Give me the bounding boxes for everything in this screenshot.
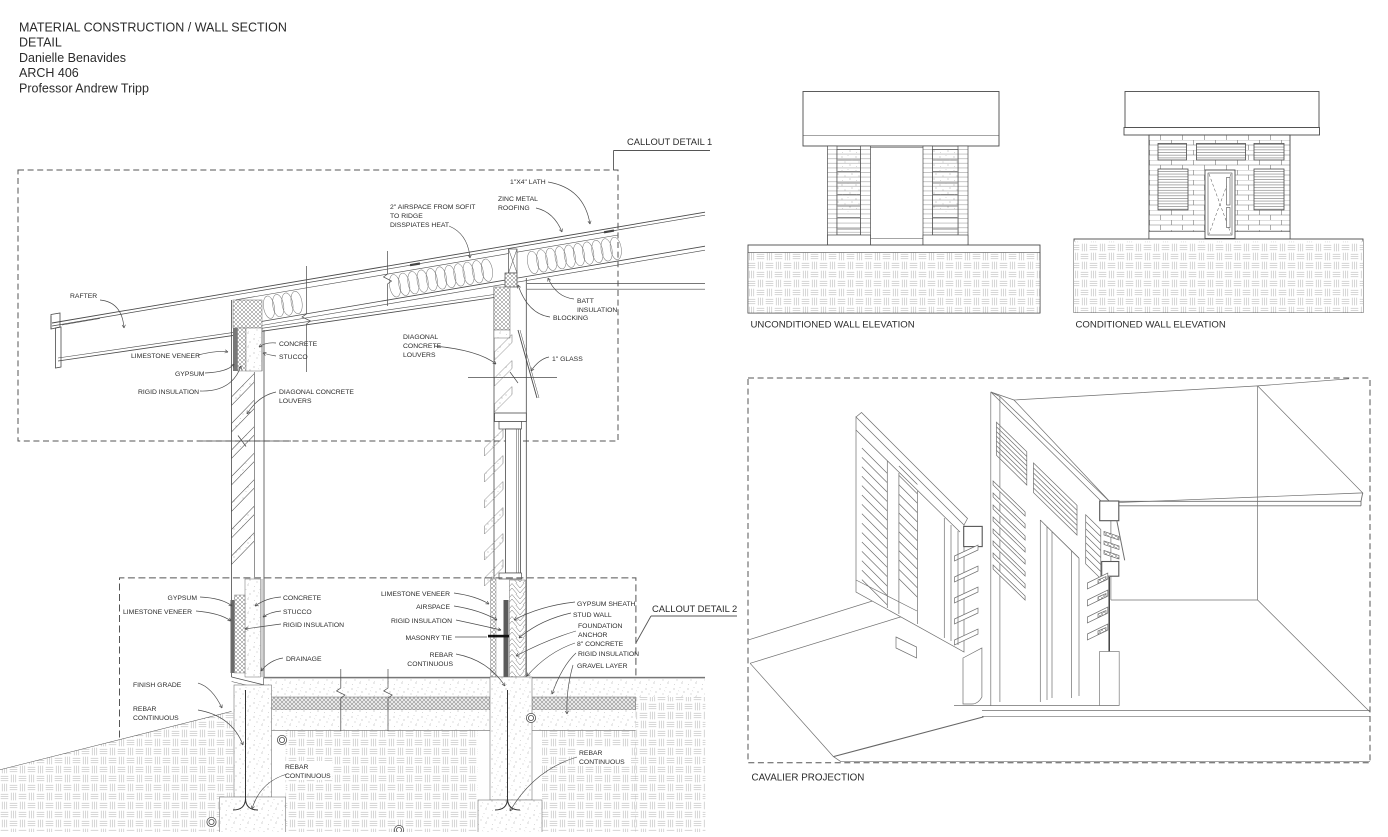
svg-text:ROOFING: ROOFING	[498, 205, 530, 212]
svg-text:LIMESTONE VENEER: LIMESTONE VENEER	[123, 609, 192, 616]
svg-text:DETAIL: DETAIL	[19, 36, 62, 50]
svg-text:MATERIAL CONSTRUCTION / WALL S: MATERIAL CONSTRUCTION / WALL SECTION	[19, 21, 287, 35]
svg-text:LOUVERS: LOUVERS	[403, 352, 436, 359]
svg-text:CONTINUOUS: CONTINUOUS	[579, 759, 625, 766]
svg-text:ARCH 406: ARCH 406	[19, 66, 79, 80]
svg-text:Danielle Benavides: Danielle Benavides	[19, 51, 126, 65]
svg-text:INSULATION: INSULATION	[577, 307, 617, 314]
svg-text:CALLOUT DETAIL 2: CALLOUT DETAIL 2	[652, 603, 737, 614]
svg-text:DRAINAGE: DRAINAGE	[286, 656, 322, 663]
svg-text:RIGID INSULATION: RIGID INSULATION	[391, 618, 452, 625]
svg-text:BLOCKING: BLOCKING	[553, 315, 588, 322]
svg-text:CONTINUOUS: CONTINUOUS	[285, 773, 331, 780]
svg-text:1"X4" LATH: 1"X4" LATH	[510, 179, 546, 186]
svg-text:ANCHOR: ANCHOR	[578, 632, 608, 639]
svg-text:FINISH GRADE: FINISH GRADE	[133, 682, 182, 689]
svg-text:DISSPIATES HEAT: DISSPIATES HEAT	[390, 222, 449, 229]
svg-text:GRAVEL LAYER: GRAVEL LAYER	[577, 663, 628, 670]
svg-text:LOUVERS: LOUVERS	[279, 398, 312, 405]
svg-text:RIGID INSULATION: RIGID INSULATION	[578, 651, 639, 658]
svg-text:AIRSPACE: AIRSPACE	[416, 604, 450, 611]
svg-text:LIMESTONE VENEER: LIMESTONE VENEER	[131, 353, 200, 360]
svg-text:DIAGONAL: DIAGONAL	[403, 334, 438, 341]
svg-text:RAFTER: RAFTER	[70, 293, 97, 300]
svg-text:CONDITIONED WALL ELEVATION: CONDITIONED WALL ELEVATION	[1076, 320, 1226, 331]
svg-text:GYPSUM SHEATH: GYPSUM SHEATH	[577, 601, 636, 608]
svg-text:GYPSUM: GYPSUM	[175, 371, 205, 378]
svg-text:Professor Andrew Tripp: Professor Andrew Tripp	[19, 82, 149, 96]
svg-text:CONCRETE: CONCRETE	[403, 343, 442, 350]
svg-text:FOUNDATION: FOUNDATION	[578, 623, 623, 630]
svg-text:REBAR: REBAR	[285, 764, 309, 771]
svg-text:STUCCO: STUCCO	[283, 609, 312, 616]
svg-text:RIGID INSULATION: RIGID INSULATION	[283, 622, 344, 629]
svg-text:STUCCO: STUCCO	[279, 354, 308, 361]
svg-text:STUD WALL: STUD WALL	[573, 612, 612, 619]
svg-text:DIAGONAL CONCRETE: DIAGONAL CONCRETE	[279, 389, 354, 396]
svg-text:CALLOUT DETAIL 1: CALLOUT DETAIL 1	[627, 136, 712, 147]
svg-text:CONTINUOUS: CONTINUOUS	[133, 715, 179, 722]
svg-text:8" CONCRETE: 8" CONCRETE	[577, 641, 624, 648]
svg-text:LIMESTONE VENEER: LIMESTONE VENEER	[381, 591, 450, 598]
svg-text:RIGID INSULATION: RIGID INSULATION	[138, 389, 199, 396]
svg-text:REBAR: REBAR	[579, 750, 603, 757]
svg-text:TO RIDGE: TO RIDGE	[390, 213, 423, 220]
svg-text:ZINC METAL: ZINC METAL	[498, 196, 538, 203]
svg-text:MASONRY TIE: MASONRY TIE	[406, 635, 453, 642]
svg-text:CONCRETE: CONCRETE	[283, 595, 322, 602]
svg-text:2" AIRSPACE FROM SOFIT: 2" AIRSPACE FROM SOFIT	[390, 204, 475, 211]
svg-text:CONCRETE: CONCRETE	[279, 341, 318, 348]
svg-text:UNCONDITIONED WALL ELEVATION: UNCONDITIONED WALL ELEVATION	[751, 320, 915, 331]
svg-text:GYPSUM: GYPSUM	[168, 595, 198, 602]
svg-text:1" GLASS: 1" GLASS	[552, 356, 583, 363]
svg-text:REBAR: REBAR	[133, 706, 157, 713]
svg-text:REBAR: REBAR	[430, 652, 454, 659]
svg-text:CAVALIER PROJECTION: CAVALIER PROJECTION	[752, 773, 865, 784]
svg-text:CONTINUOUS: CONTINUOUS	[407, 661, 453, 668]
svg-text:BATT: BATT	[577, 298, 594, 305]
